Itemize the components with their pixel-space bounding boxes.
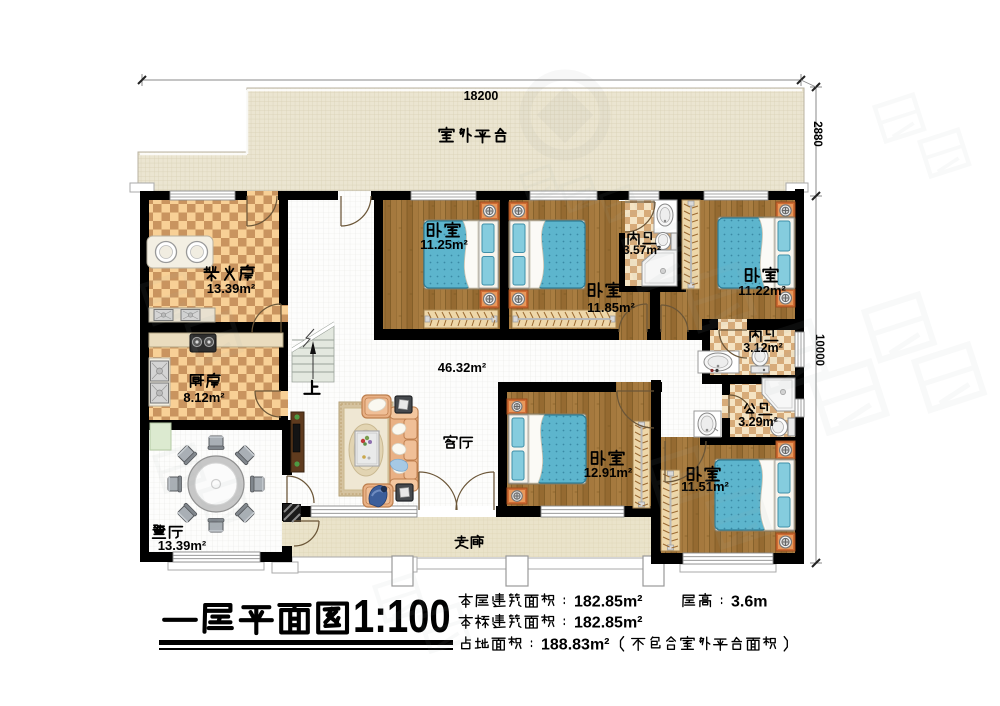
svg-text:46.32m²: 46.32m² <box>438 360 487 375</box>
svg-text:3.12m²: 3.12m² <box>743 341 783 355</box>
svg-text:18200: 18200 <box>464 89 499 103</box>
svg-text:3.6m: 3.6m <box>731 594 767 611</box>
svg-text:182.85m²: 182.85m² <box>574 615 643 632</box>
svg-text:11.85m²: 11.85m² <box>587 300 635 315</box>
svg-text:11.25m²: 11.25m² <box>420 237 468 252</box>
svg-text:3.29m²: 3.29m² <box>738 415 778 429</box>
svg-text:13.39m²: 13.39m² <box>158 538 207 553</box>
svg-text:2880: 2880 <box>811 121 823 147</box>
svg-text:188.83m²: 188.83m² <box>541 637 610 654</box>
svg-text:13.39m²: 13.39m² <box>207 281 256 296</box>
svg-text:8.12m²: 8.12m² <box>183 390 225 405</box>
svg-text:12.91m²: 12.91m² <box>584 465 633 480</box>
svg-text:182.85m²: 182.85m² <box>574 594 643 611</box>
